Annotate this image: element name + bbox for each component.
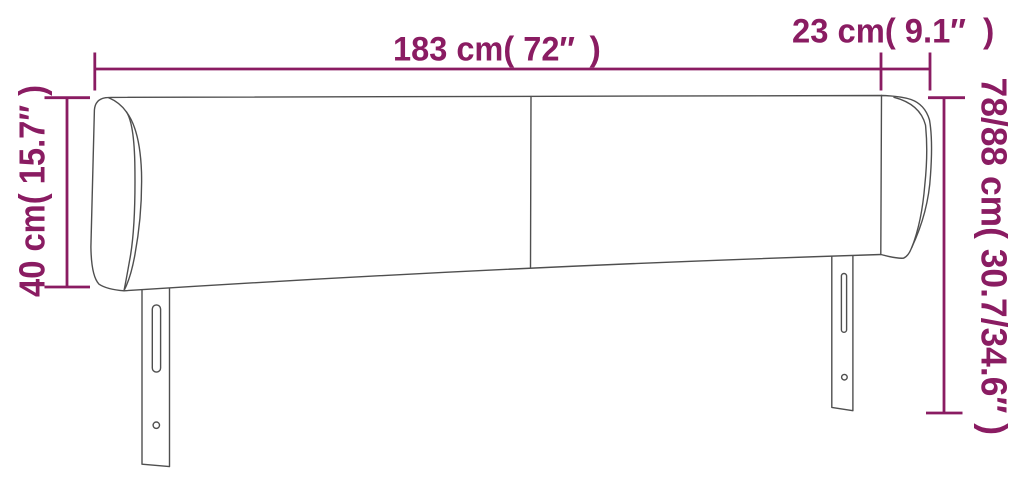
svg-text:): ) (590, 31, 601, 69)
svg-text:23 cm( 9.1″: 23 cm( 9.1″ (792, 13, 966, 51)
svg-text:): ) (983, 13, 994, 51)
svg-text:78/88 cm( 30.7/34.6″ ): 78/88 cm( 30.7/34.6″ ) (974, 78, 1015, 436)
svg-text:183 cm( 72″: 183 cm( 72″ (393, 31, 575, 69)
svg-text:40 cm( 15.7″ ): 40 cm( 15.7″ ) (12, 85, 53, 297)
